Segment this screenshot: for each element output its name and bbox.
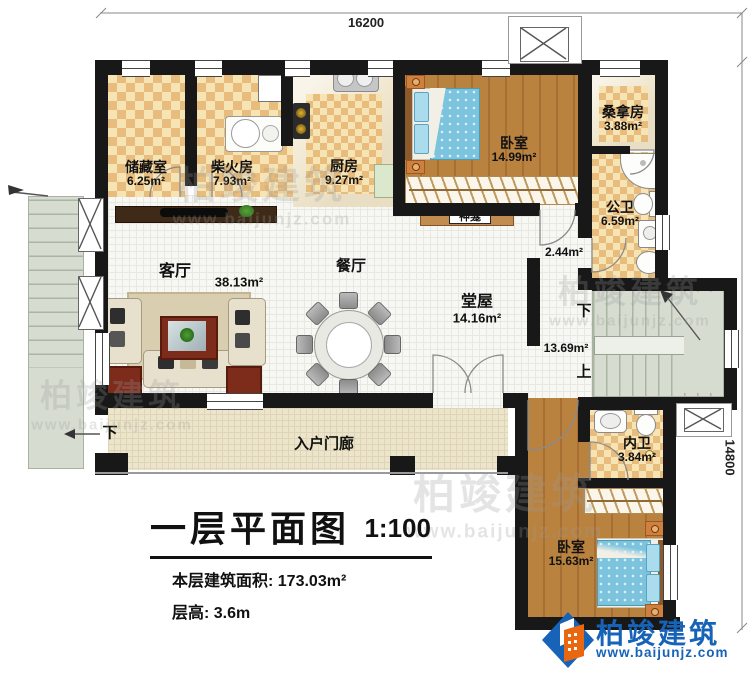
room-area: 3.84m² — [618, 451, 656, 465]
sofa-right — [228, 298, 266, 366]
dining-table-top — [326, 322, 372, 368]
room-area: 6.59m² — [601, 215, 639, 229]
brand-url: www.baijunjz.com — [596, 645, 750, 660]
title-underline — [150, 556, 432, 559]
dim-tick — [737, 8, 747, 18]
inner-basin — [600, 413, 621, 429]
wall-right-upper — [655, 60, 668, 215]
window — [663, 545, 678, 600]
room-area: 9.27m² — [325, 174, 363, 188]
exterior-stair-landing — [28, 368, 84, 469]
bed2-pillow — [646, 574, 660, 602]
brand-logo-icon — [540, 610, 596, 670]
room-name: 堂屋 — [453, 293, 501, 311]
floor-height-line: 层高: 3.6m — [172, 599, 470, 623]
room-name: 储藏室 — [125, 159, 167, 175]
room-name: 卧室 — [549, 539, 594, 555]
dining-chair — [384, 335, 401, 354]
brand-logo — [540, 610, 596, 670]
dim-tick — [96, 8, 106, 18]
sofa-pillow — [235, 310, 250, 325]
dining-chair — [296, 335, 313, 354]
firewood-pot — [231, 119, 260, 148]
room-label-public-bath: 公卫 6.59m² — [601, 199, 639, 229]
bed-sheet-fold — [430, 88, 446, 158]
plan-scale: 1:100 — [364, 513, 431, 544]
firewood-pot-small — [262, 125, 279, 142]
sofa-pillow — [110, 331, 125, 347]
room-area: 6.25m² — [125, 175, 167, 189]
west-flue-icon — [78, 198, 104, 252]
west-flue-icon — [78, 276, 104, 330]
room-name: 入户门廊 — [294, 435, 354, 452]
bed-pillow — [414, 124, 429, 154]
stair-handrail — [594, 336, 688, 355]
ext-stair-flag — [8, 185, 24, 195]
window — [95, 333, 110, 385]
wall-bedroom-sauna — [578, 60, 592, 238]
plant-icon — [239, 205, 254, 217]
room-name: 公卫 — [601, 199, 639, 215]
title-block: 一层平面图 1:100 本层建筑面积: 173.03m² 层高: 3.6m — [150, 500, 470, 623]
window — [482, 60, 510, 77]
stove-burner — [296, 108, 306, 118]
dimension-top: 16200 — [348, 15, 384, 30]
wardrobe-bottom — [584, 488, 665, 514]
dining-chair — [339, 292, 358, 309]
wall-living-south — [95, 393, 207, 408]
room-label-storage: 储藏室 6.25m² — [125, 159, 167, 189]
plan-title: 一层平面图 — [150, 500, 350, 552]
porch-edge — [95, 472, 508, 474]
room-area: 3.88m² — [602, 120, 644, 134]
wall-stair-north — [592, 278, 737, 291]
nightstand — [406, 75, 425, 89]
sofa-pillow — [110, 308, 125, 324]
room-label-sauna: 桑拿房 3.88m² — [602, 104, 644, 134]
wall-living-south-2 — [263, 393, 433, 408]
stove-burner — [296, 124, 306, 134]
nightstand — [406, 160, 425, 174]
room-name: 内卫 — [618, 435, 656, 451]
title-row: 一层平面图 1:100 — [150, 500, 470, 552]
room-name: 厨房 — [325, 158, 363, 174]
room-area: 14.16m² — [453, 312, 501, 327]
dim-tick — [737, 57, 747, 67]
porch-down-label: 下 — [102, 422, 117, 443]
bathtub-drain — [640, 160, 646, 166]
window — [724, 330, 739, 368]
room-name: 桑拿房 — [602, 104, 644, 120]
room-label-kitchen: 厨房 9.27m² — [325, 158, 363, 188]
exterior-stair — [28, 196, 84, 370]
room-label-dining: 餐厅 — [336, 257, 366, 274]
window — [285, 60, 310, 77]
wall-kitchen-bedroom — [393, 60, 405, 216]
room-label-firewood: 柴火房 7.93m² — [211, 159, 253, 189]
tv — [160, 208, 228, 217]
wall-hall-divider — [527, 258, 540, 346]
bed-pillow — [414, 92, 429, 122]
floor-plan-canvas: 神龛 — [0, 0, 750, 674]
dimension-right: 14800 — [723, 439, 738, 475]
room-name: 柴火房 — [211, 159, 253, 175]
chimney-right-icon — [684, 408, 724, 432]
wall-sauna-bath — [592, 146, 630, 154]
room-name: 卧室 — [492, 135, 537, 151]
room-label-bedroom-bottom: 卧室 15.63m² — [549, 539, 594, 569]
table-plant-icon — [180, 328, 194, 342]
stair-lobby-area: 13.69m² — [544, 341, 589, 355]
room-label-hall: 堂屋 14.16m² — [453, 293, 501, 326]
window — [600, 60, 640, 77]
wall-storage-firewood — [185, 74, 197, 186]
bed2-sheet-fold — [597, 540, 649, 558]
wall-bath-west — [578, 268, 592, 290]
wall-inner-bath-west — [578, 408, 590, 442]
room-label-inner-bath: 内卫 3.84m² — [618, 435, 656, 465]
wall-stair-east — [724, 290, 737, 330]
room-name: 餐厅 — [336, 257, 366, 274]
sofa-pillow — [235, 333, 250, 348]
window — [122, 60, 150, 77]
bed2-pillow — [646, 544, 660, 572]
firewood-cabinet — [258, 75, 283, 102]
wall-wing-east — [663, 398, 676, 545]
wardrobe — [405, 176, 580, 205]
stair-landing — [684, 292, 722, 393]
inner-toilet-bowl — [636, 414, 656, 436]
chimney-top-icon — [520, 27, 569, 62]
room-name: 客厅 — [159, 263, 191, 281]
wall-wing-west — [515, 393, 528, 630]
window — [655, 215, 670, 250]
living-area: 38.13m² — [215, 275, 263, 290]
stair-down-label: 下 — [576, 300, 591, 321]
stair-up-label: 上 — [576, 361, 591, 382]
window — [195, 60, 222, 77]
room-label-porch: 入户门廊 — [294, 435, 354, 452]
room-area: 7.93m² — [211, 175, 253, 189]
wall-bedroom-south — [393, 203, 540, 216]
room-area: 15.63m² — [549, 555, 594, 569]
window — [368, 60, 393, 77]
nightstand — [645, 521, 665, 536]
room-label-living: 客厅 — [159, 263, 191, 281]
floor-area-line: 本层建筑面积: 173.03m² — [172, 567, 470, 591]
bed-headboard — [405, 86, 412, 160]
room-label-bedroom-top: 卧室 14.99m² — [492, 135, 537, 165]
wall-inner-bath-south — [578, 478, 663, 488]
nook-area: 2.44m² — [545, 245, 583, 259]
porch-window — [207, 393, 263, 410]
room-area: 14.99m² — [492, 151, 537, 165]
